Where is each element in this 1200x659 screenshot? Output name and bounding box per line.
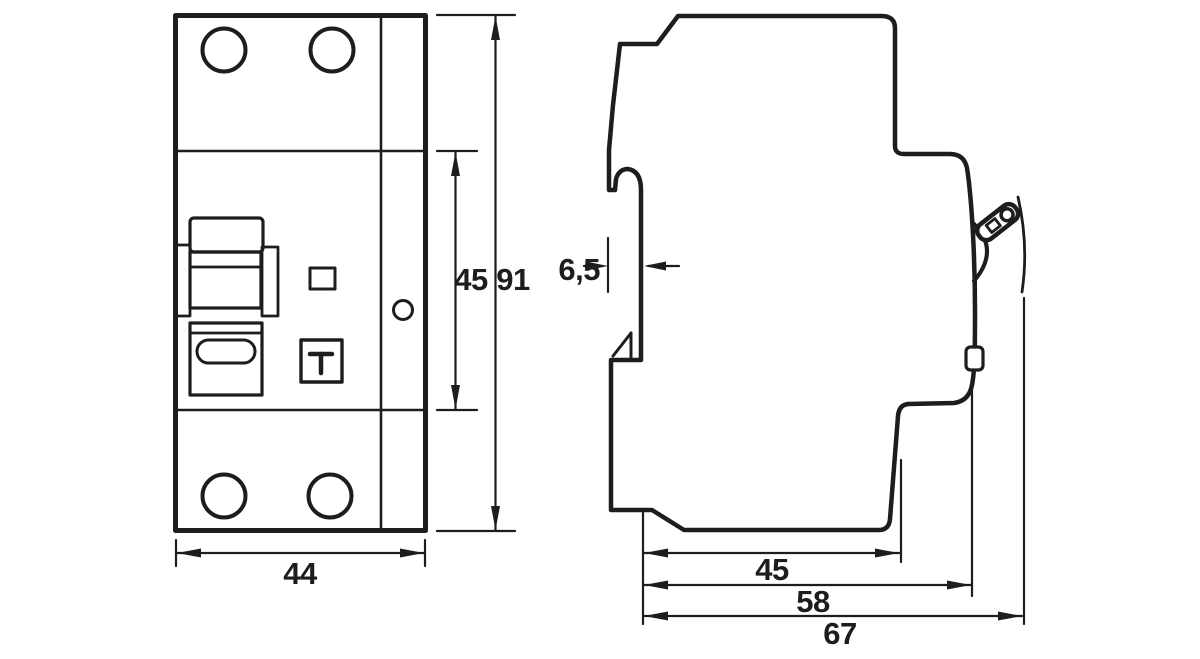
dimension-rail-seat-depth: 45 — [643, 460, 901, 624]
dim-label-total-depth: 67 — [823, 616, 856, 651]
dimension-front-width: 44 — [176, 540, 425, 591]
dim-label-body-depth: 58 — [796, 584, 830, 619]
arrowhead-up — [491, 16, 500, 40]
side-housing-outline — [609, 16, 975, 530]
arrowhead-down — [491, 506, 500, 530]
dimension-rail-offset: 6,5 — [558, 238, 679, 292]
front-view — [176, 16, 426, 531]
arrowhead-up — [451, 152, 460, 176]
arrowhead-right — [400, 549, 424, 558]
arrowhead-left — [644, 549, 668, 558]
switch-lever-handle — [190, 218, 263, 252]
label-window-slot — [197, 340, 255, 363]
sealing-hole — [394, 301, 413, 320]
arrowhead-right — [998, 612, 1022, 621]
dim-label-front-section-height: 45 — [454, 262, 488, 297]
switch-side-tab-left — [176, 245, 190, 316]
indicator-window — [310, 268, 335, 289]
side-view — [609, 16, 1025, 530]
toggle-lever — [974, 201, 1021, 244]
drawing-svg: 44 45 91 — [0, 0, 1200, 659]
arrowhead-down — [451, 385, 460, 409]
arrowhead-right — [875, 549, 899, 558]
arrowhead-right — [947, 581, 971, 590]
dim-label-front-total-height: 91 — [496, 262, 530, 297]
dimension-drawing: 44 45 91 — [0, 0, 1200, 659]
arrowhead-left — [644, 262, 666, 271]
dimension-front-section-height: 45 — [437, 151, 488, 410]
switch-body — [190, 252, 261, 308]
arrowhead-left — [644, 612, 668, 621]
dim-label-front-width: 44 — [283, 556, 318, 591]
terminal-hole-top-left — [203, 29, 246, 72]
front-housing-outline — [176, 16, 426, 531]
terminal-hole-bottom-left — [203, 475, 246, 518]
dim-label-rail-offset: 6,5 — [558, 252, 600, 287]
side-test-button — [966, 347, 983, 370]
arrowhead-left — [644, 581, 668, 590]
switch-side-tab-right — [262, 247, 278, 316]
dim-label-rail-seat-depth: 45 — [755, 552, 789, 587]
terminal-hole-bottom-right — [309, 475, 352, 518]
dimension-body-depth: 58 — [644, 377, 972, 619]
arrowhead-left — [177, 549, 201, 558]
rail-clip-diagonal — [613, 333, 631, 356]
terminal-hole-top-right — [311, 29, 354, 72]
